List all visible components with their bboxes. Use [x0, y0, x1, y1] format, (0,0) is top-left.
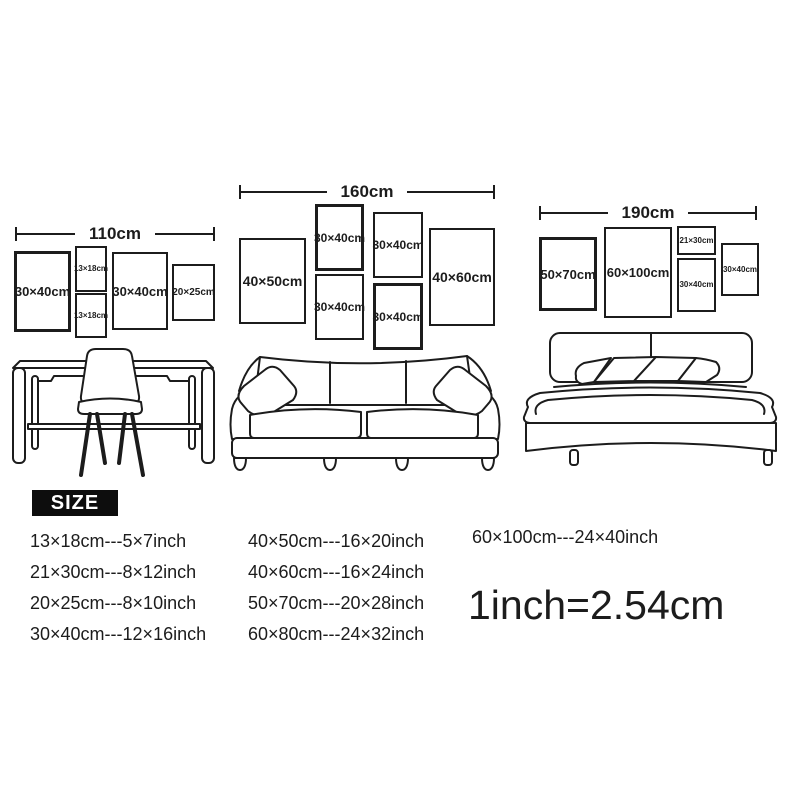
- frame-30x40cm: 30×40cm: [14, 251, 71, 332]
- dimension-line: [407, 191, 493, 193]
- size-conversion-row: 20×25cm---8×10inch: [30, 588, 206, 619]
- frame-60x100cm: 60×100cm: [604, 227, 672, 318]
- dimension-arrow-190cm: 190cm: [539, 205, 757, 220]
- size-conversion-row: 13×18cm---5×7inch: [30, 526, 206, 557]
- dimension-line: [241, 191, 327, 193]
- frame-30x40cm: 30×40cm: [677, 258, 716, 312]
- frame-30x40cm: 30×40cm: [373, 283, 423, 350]
- size-legend-title: SIZE: [32, 490, 118, 516]
- sofa-illustration: [220, 343, 510, 473]
- size-conversion-row: 40×60cm---16×24inch: [248, 557, 424, 588]
- dimension-label: 110cm: [75, 225, 155, 242]
- dimension-line: [17, 233, 75, 235]
- size-conversion-row: 40×50cm---16×20inch: [248, 526, 424, 557]
- frame-13x18cm: 13×18cm: [75, 293, 107, 338]
- desk-chair-icon: [8, 348, 220, 483]
- inch-conversion-note: 1inch=2.54cm: [468, 582, 724, 629]
- dimension-line: [155, 233, 213, 235]
- frame-40x50cm: 40×50cm: [239, 238, 306, 324]
- dimension-arrow-160cm: 160cm: [239, 184, 495, 199]
- bed-icon: [510, 330, 790, 470]
- frame-30x40cm: 30×40cm: [373, 212, 423, 278]
- size-legend-column-1: 13×18cm---5×7inch 21×30cm---8×12inch 20×…: [30, 526, 206, 650]
- dimension-tick-right: [755, 206, 757, 220]
- bed-illustration: [510, 330, 790, 470]
- size-conversion-row: 30×40cm---12×16inch: [30, 619, 206, 650]
- frame-30x40cm: 30×40cm: [721, 243, 759, 296]
- dimension-label: 160cm: [327, 183, 408, 200]
- size-conversion-row: 21×30cm---8×12inch: [30, 557, 206, 588]
- size-conversion-row: 60×100cm---24×40inch: [472, 522, 658, 553]
- dimension-tick-right: [493, 185, 495, 199]
- frame-21x30cm: 21×30cm: [677, 226, 716, 255]
- size-legend-column-3: 60×100cm---24×40inch: [472, 522, 658, 553]
- dimension-arrow-110cm: 110cm: [15, 226, 215, 241]
- frame-13x18cm: 13×18cm: [75, 246, 107, 292]
- size-legend-column-2: 40×50cm---16×20inch 40×60cm---16×24inch …: [248, 526, 424, 650]
- sofa-icon: [220, 343, 510, 473]
- wall-art-size-chart: 110cm 30×40cm 13×18cm 13×18cm 30×40cm 20…: [0, 0, 800, 800]
- frame-30x40cm: 30×40cm: [112, 252, 168, 330]
- dimension-tick-right: [213, 227, 215, 241]
- frame-30x40cm: 30×40cm: [315, 274, 364, 340]
- size-conversion-row: 60×80cm---24×32inch: [248, 619, 424, 650]
- dimension-label: 190cm: [608, 204, 689, 221]
- size-conversion-row: 50×70cm---20×28inch: [248, 588, 424, 619]
- frame-40x60cm: 40×60cm: [429, 228, 495, 326]
- frame-20x25cm: 20×25cm: [172, 264, 215, 321]
- frame-50x70cm: 50×70cm: [539, 237, 597, 311]
- dimension-line: [688, 212, 755, 214]
- desk-with-chair-illustration: [8, 348, 220, 483]
- dimension-line: [541, 212, 608, 214]
- frame-30x40cm: 30×40cm: [315, 204, 364, 271]
